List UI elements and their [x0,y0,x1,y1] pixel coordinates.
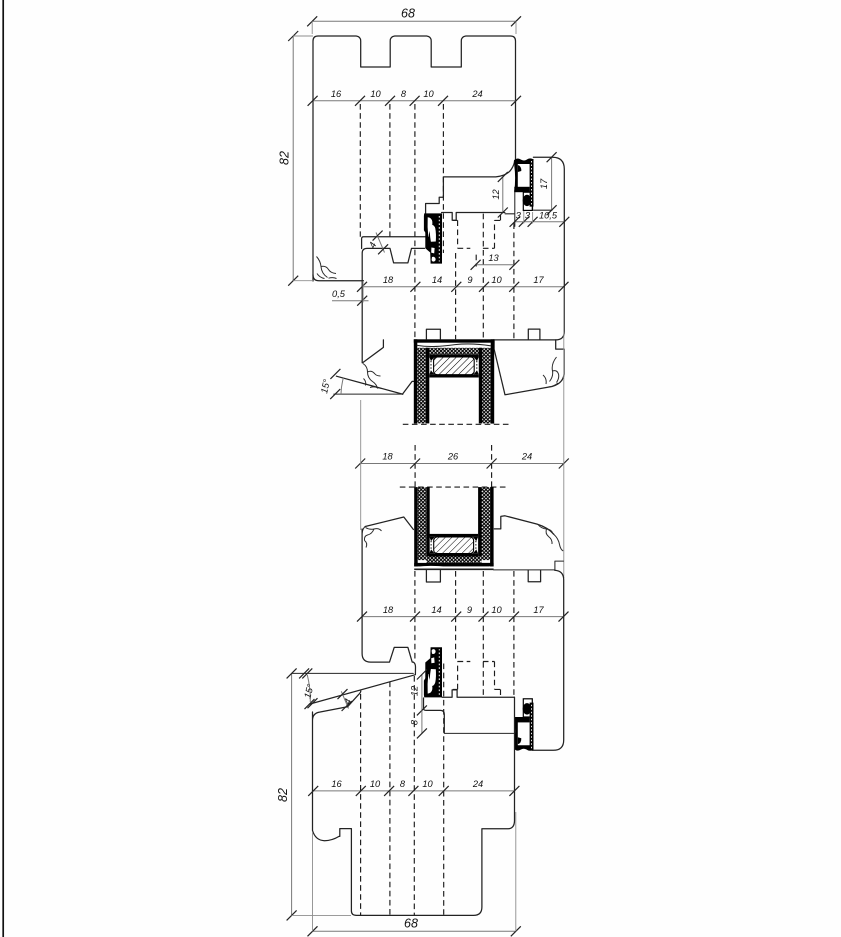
svg-text:13: 13 [488,253,499,263]
svg-text:24: 24 [471,89,482,99]
svg-text:10: 10 [423,89,434,99]
svg-text:10: 10 [370,89,381,99]
svg-text:82: 82 [278,151,292,165]
svg-text:16: 16 [331,89,342,99]
svg-text:9: 9 [467,605,472,615]
svg-text:14: 14 [432,275,442,285]
svg-text:18: 18 [383,605,394,615]
svg-text:17: 17 [533,275,544,285]
svg-text:0,5: 0,5 [332,289,346,299]
svg-text:24: 24 [521,452,532,462]
svg-text:3: 3 [516,210,522,221]
svg-text:10,5: 10,5 [539,211,558,221]
svg-text:9: 9 [467,275,472,285]
svg-text:26: 26 [447,452,459,462]
svg-text:10: 10 [370,779,381,789]
svg-text:18: 18 [383,275,394,285]
svg-text:17: 17 [533,605,544,615]
svg-text:16: 16 [331,779,342,789]
svg-text:18: 18 [382,452,393,462]
svg-text:68: 68 [404,917,418,931]
svg-text:10: 10 [422,779,433,789]
svg-text:24: 24 [472,779,483,789]
svg-text:68: 68 [401,7,415,21]
svg-text:12: 12 [491,189,501,200]
svg-text:17: 17 [539,178,549,189]
svg-text:82: 82 [276,788,290,802]
svg-text:8: 8 [400,779,406,789]
svg-text:8: 8 [401,89,407,99]
svg-text:10: 10 [491,605,502,615]
svg-text:10: 10 [491,275,502,285]
svg-text:12: 12 [410,685,420,696]
svg-text:3: 3 [525,210,531,221]
svg-text:14: 14 [431,605,441,615]
svg-text:8: 8 [410,719,420,725]
